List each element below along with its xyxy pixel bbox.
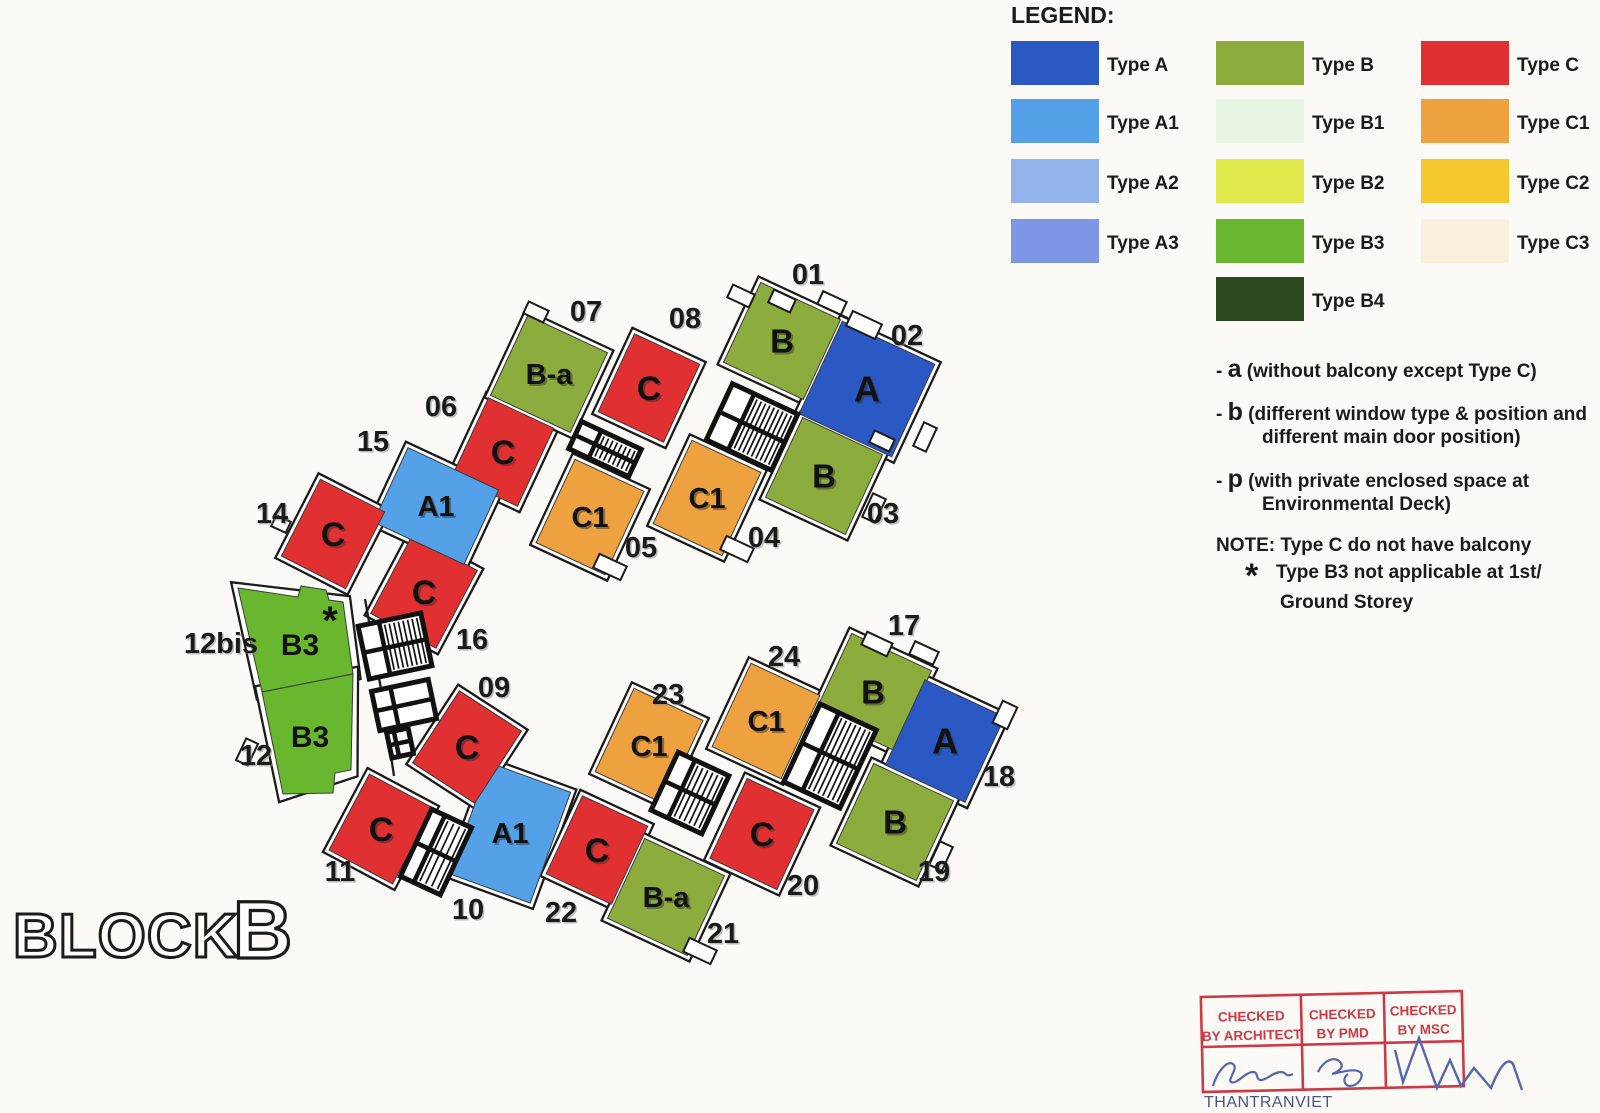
svg-text:14: 14 (256, 498, 288, 530)
svg-text:B: B (233, 885, 292, 976)
svg-text:18: 18 (983, 761, 1015, 793)
svg-text:Type B4: Type B4 (1312, 291, 1385, 312)
svg-text:Type C2: Type C2 (1517, 173, 1590, 194)
svg-text:04: 04 (748, 522, 780, 554)
svg-text:21: 21 (707, 918, 739, 950)
svg-text:*: * (322, 599, 338, 643)
svg-text:C1: C1 (688, 483, 725, 515)
svg-text:C: C (491, 434, 516, 472)
svg-text:Type C: Type C (1517, 55, 1579, 76)
svg-text:12bis: 12bis (184, 628, 258, 660)
svg-text:10: 10 (452, 894, 484, 926)
svg-text:C: C (637, 370, 662, 408)
svg-text:C: C (750, 816, 775, 854)
svg-text:C1: C1 (630, 731, 667, 763)
svg-text:BY MSC: BY MSC (1397, 1021, 1450, 1037)
svg-text:B: B (812, 458, 836, 495)
svg-text:B3: B3 (291, 721, 329, 754)
svg-text:Type A2: Type A2 (1107, 173, 1179, 194)
svg-text:20: 20 (787, 870, 819, 902)
svg-text:B: B (861, 674, 885, 711)
svg-text:23: 23 (652, 679, 684, 711)
svg-text:THANTRANVIET: THANTRANVIET (1204, 1094, 1333, 1111)
svg-text:Type A1: Type A1 (1107, 113, 1179, 134)
svg-text:12: 12 (240, 740, 272, 772)
svg-text:CHECKED: CHECKED (1309, 1006, 1376, 1023)
svg-text:07: 07 (570, 296, 602, 328)
svg-text:08: 08 (669, 303, 701, 335)
svg-text:Type B3: Type B3 (1312, 233, 1385, 254)
svg-text:01: 01 (792, 259, 824, 291)
svg-text:B3: B3 (281, 629, 319, 662)
svg-text:Type B2: Type B2 (1312, 173, 1385, 194)
svg-text:B-a: B-a (526, 359, 574, 391)
svg-text:05: 05 (625, 532, 657, 564)
svg-text:LEGEND:: LEGEND: (1011, 2, 1115, 28)
svg-text:*: * (1245, 557, 1259, 595)
svg-text:C1: C1 (571, 502, 608, 534)
svg-text:Type C3: Type C3 (1517, 233, 1590, 254)
svg-text:B-a: B-a (643, 882, 691, 914)
svg-text:Type A: Type A (1107, 55, 1169, 76)
svg-text:24: 24 (768, 641, 800, 673)
svg-text:C: C (585, 832, 610, 870)
svg-text:BY ARCHITECT: BY ARCHITECT (1202, 1027, 1303, 1044)
svg-text:03: 03 (867, 498, 899, 530)
svg-text:A: A (854, 369, 880, 410)
svg-text:Type C1: Type C1 (1517, 113, 1590, 134)
svg-text:C: C (321, 516, 346, 554)
svg-text:B: B (883, 804, 907, 841)
svg-text:16: 16 (456, 624, 488, 656)
svg-text:different main door position): different main door position) (1262, 427, 1521, 448)
svg-text:Ground Storey: Ground Storey (1280, 592, 1413, 613)
svg-text:06: 06 (425, 391, 457, 423)
svg-text:C: C (455, 729, 480, 767)
svg-text:C1: C1 (747, 706, 784, 738)
svg-text:Type B: Type B (1312, 55, 1374, 76)
svg-text:22: 22 (545, 897, 577, 929)
svg-text:BY PMD: BY PMD (1316, 1025, 1369, 1041)
svg-text:17: 17 (888, 610, 920, 642)
svg-text:09: 09 (478, 672, 510, 704)
svg-text:02: 02 (891, 320, 923, 352)
svg-text:Type B1: Type B1 (1312, 113, 1385, 134)
svg-text:NOTE: Type C do not have balco: NOTE: Type C do not have balcony (1216, 535, 1532, 556)
svg-text:C: C (369, 811, 394, 849)
svg-text:A: A (932, 721, 958, 762)
svg-text:Environmental Deck): Environmental Deck) (1262, 494, 1451, 515)
svg-text:CHECKED: CHECKED (1390, 1002, 1457, 1019)
svg-text:19: 19 (918, 856, 950, 888)
svg-text:Type B3 not applicable at 1st/: Type B3 not applicable at 1st/ (1276, 562, 1542, 583)
svg-text:15: 15 (357, 426, 389, 458)
svg-text:A1: A1 (491, 818, 528, 850)
svg-text:Type A3: Type A3 (1107, 233, 1179, 254)
svg-text:CHECKED: CHECKED (1218, 1008, 1285, 1025)
svg-text:BLOCK: BLOCK (13, 902, 238, 971)
svg-text:B: B (770, 323, 794, 360)
svg-text:C: C (412, 574, 437, 612)
svg-text:11: 11 (325, 856, 356, 888)
svg-text:A1: A1 (417, 491, 454, 523)
